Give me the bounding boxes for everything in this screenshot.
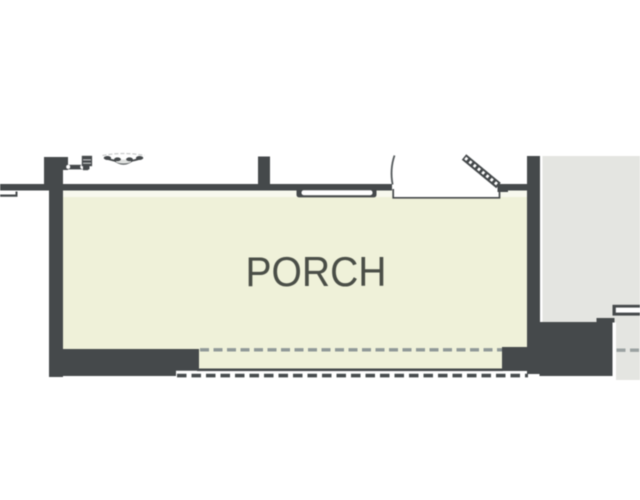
- svg-text:PORCH: PORCH: [246, 248, 387, 295]
